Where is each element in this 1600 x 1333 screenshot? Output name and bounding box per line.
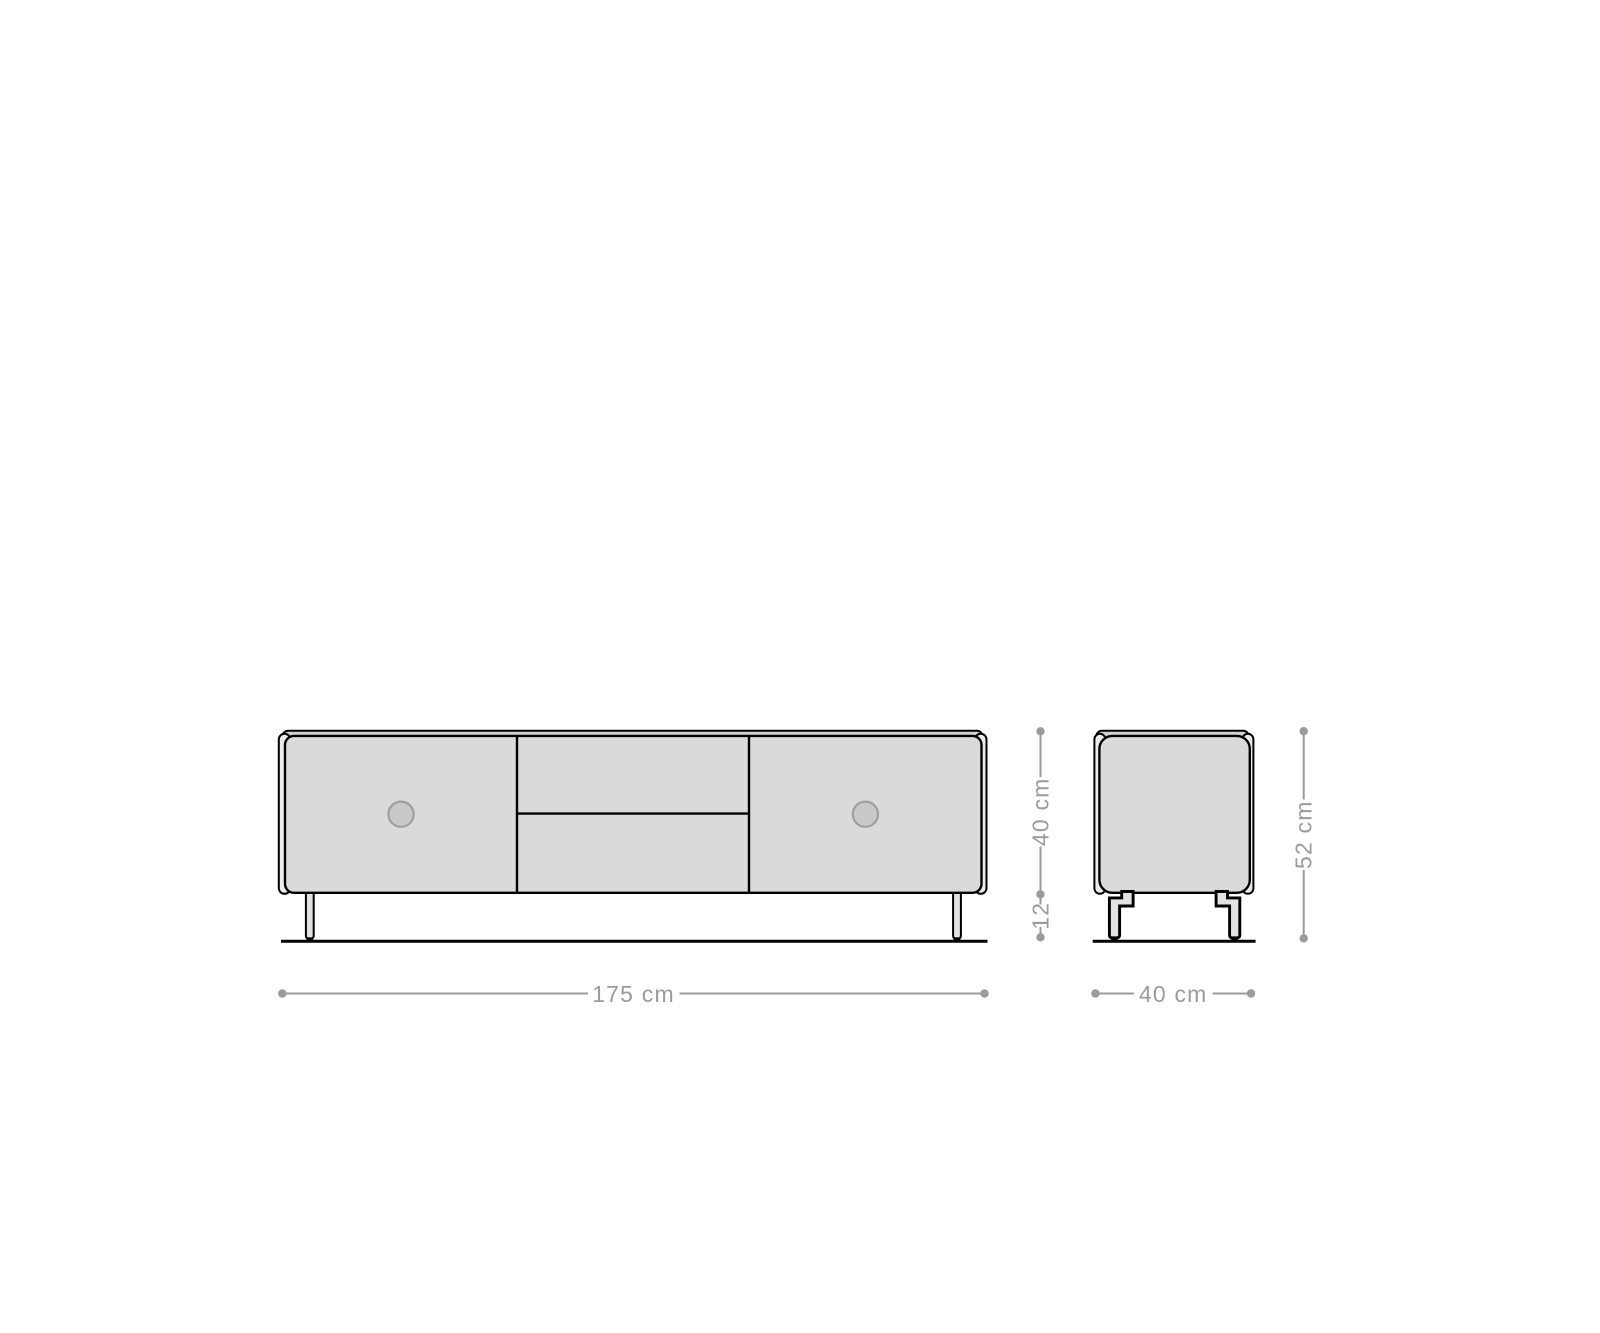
svg-text:52 cm: 52 cm: [1291, 800, 1317, 869]
svg-text:40 cm: 40 cm: [1139, 981, 1208, 1007]
svg-text:40 cm: 40 cm: [1027, 777, 1053, 846]
svg-text:175 cm: 175 cm: [592, 981, 675, 1007]
svg-text:12: 12: [1027, 902, 1053, 930]
